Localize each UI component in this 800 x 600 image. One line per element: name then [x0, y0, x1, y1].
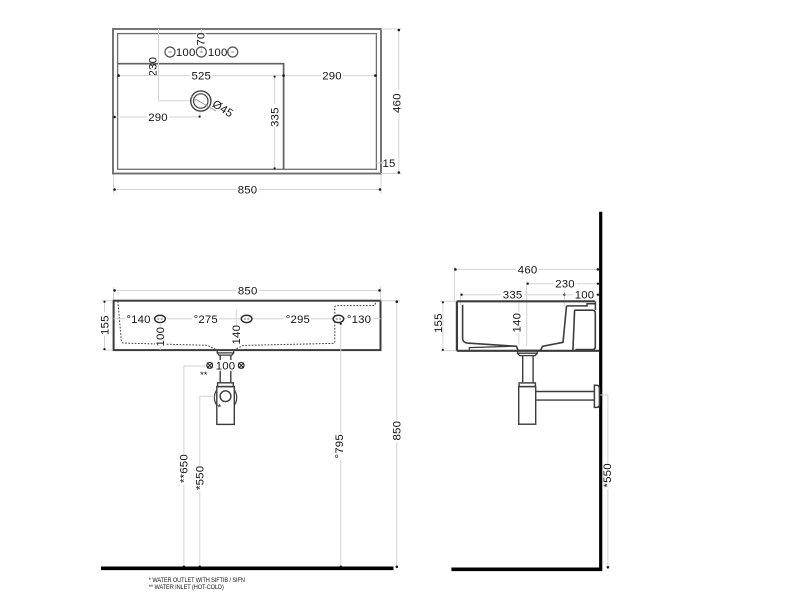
svg-text:155: 155 — [99, 315, 111, 335]
svg-text:°140: °140 — [126, 314, 150, 326]
svg-text:140: 140 — [512, 313, 524, 333]
svg-text:*550: *550 — [602, 463, 614, 487]
svg-text:140: 140 — [231, 325, 243, 345]
svg-text:100: 100 — [216, 360, 236, 372]
svg-text:850: 850 — [392, 421, 404, 441]
svg-text:100: 100 — [176, 47, 196, 59]
svg-text:290: 290 — [322, 71, 342, 83]
svg-text:155: 155 — [433, 313, 445, 333]
svg-text:** WATER INLET (HOT-COLD): ** WATER INLET (HOT-COLD) — [149, 585, 224, 591]
svg-text:850: 850 — [238, 285, 258, 297]
svg-text:70: 70 — [195, 33, 207, 46]
svg-text:°275: °275 — [194, 314, 218, 326]
svg-text:100: 100 — [155, 327, 167, 347]
svg-text:*550: *550 — [195, 466, 207, 490]
svg-text:290: 290 — [148, 112, 168, 124]
svg-text:460: 460 — [518, 264, 538, 276]
svg-text:850: 850 — [238, 185, 258, 197]
svg-text:* WATER OUTLET WITH SIFTIB /: * WATER OUTLET WITH SIFTIB / SIFN — [149, 578, 245, 584]
svg-text:230: 230 — [147, 57, 159, 77]
svg-text:°795: °795 — [334, 434, 346, 458]
svg-text:°130: °130 — [347, 314, 371, 326]
svg-text:*: * — [218, 403, 222, 414]
svg-text:°295: °295 — [286, 314, 310, 326]
svg-text:100: 100 — [208, 47, 228, 59]
svg-text:**650: **650 — [179, 454, 191, 483]
svg-text:100: 100 — [575, 290, 595, 302]
svg-text:460: 460 — [391, 93, 403, 113]
svg-text:15: 15 — [383, 158, 396, 170]
svg-text:335: 335 — [503, 290, 523, 302]
svg-text:525: 525 — [191, 71, 211, 83]
svg-text:335: 335 — [270, 107, 282, 127]
svg-text:230: 230 — [555, 279, 575, 291]
svg-text:**: ** — [200, 370, 208, 381]
